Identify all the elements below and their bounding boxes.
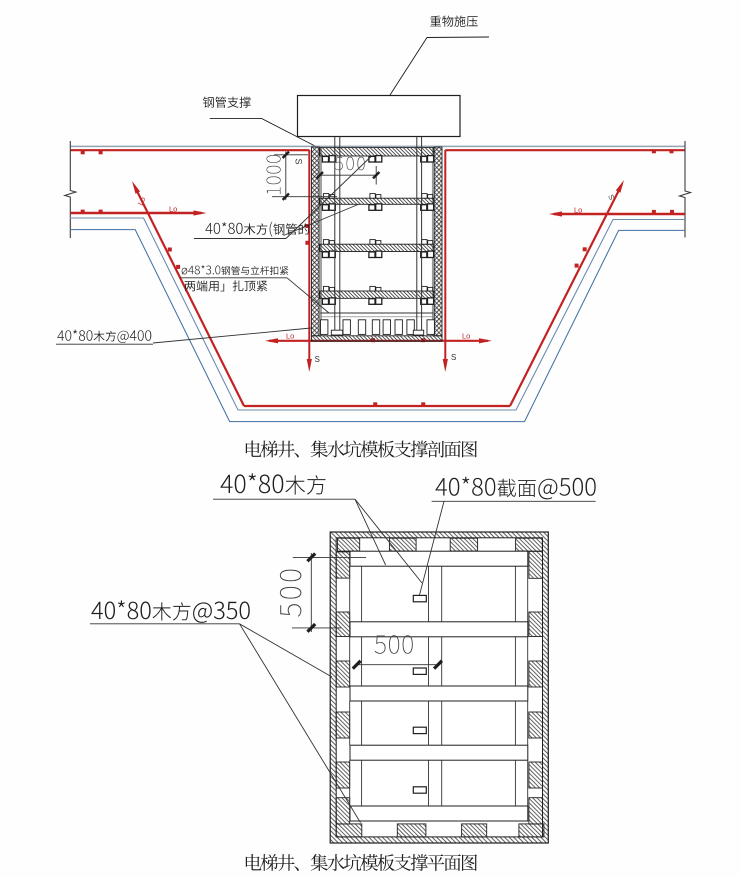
svg-text:Lo: Lo <box>169 205 177 214</box>
svg-text:Lo: Lo <box>574 206 582 215</box>
svg-text:Lo: Lo <box>286 332 294 341</box>
svg-text:Lo: Lo <box>462 332 470 341</box>
svg-text:S: S <box>315 355 320 364</box>
svg-text:S: S <box>451 353 456 362</box>
svg-text:S: S <box>294 159 304 165</box>
